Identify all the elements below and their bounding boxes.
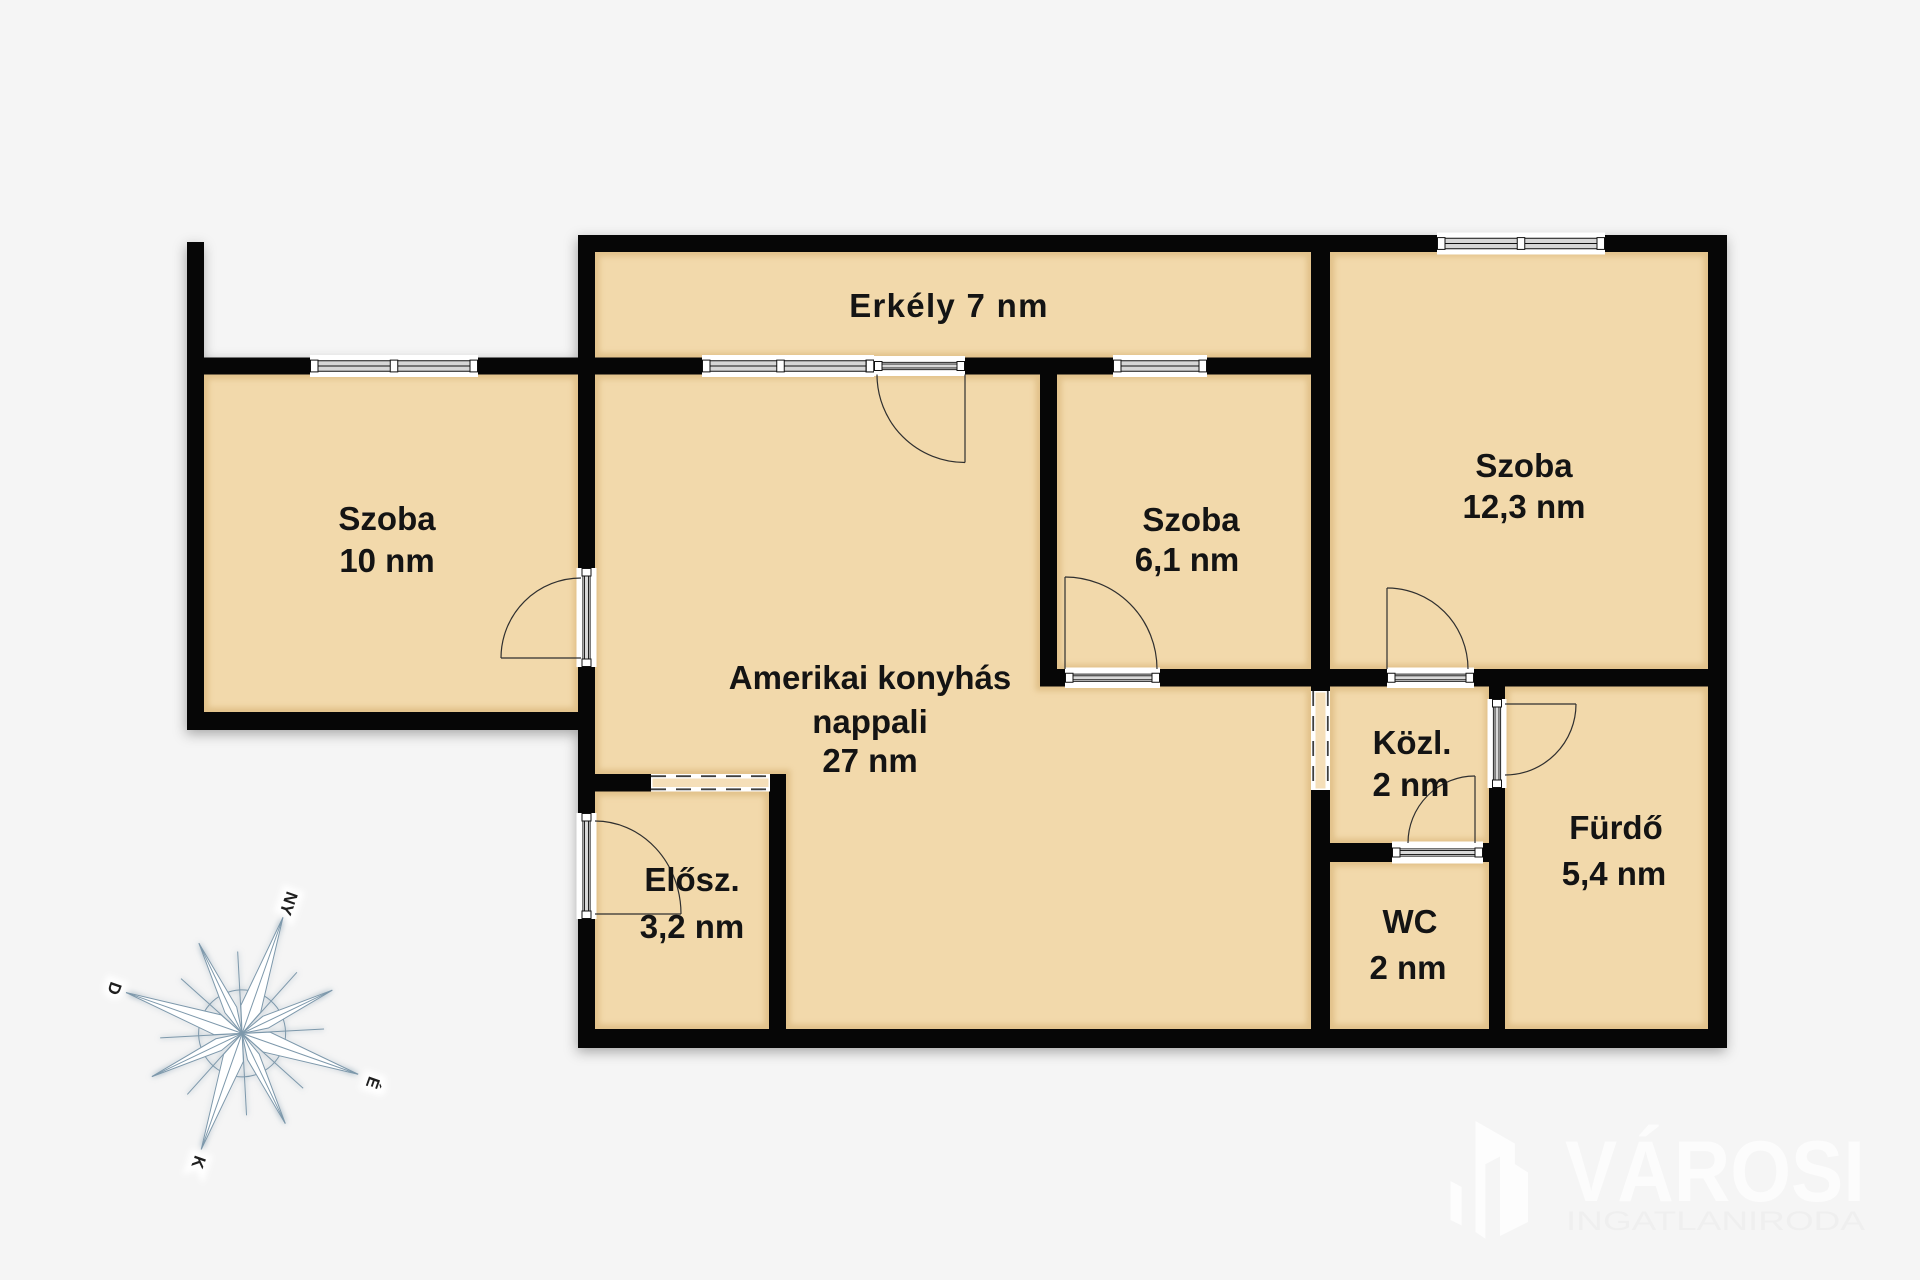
svg-text:Szoba: Szoba (338, 500, 436, 537)
svg-text:Szoba: Szoba (1142, 501, 1240, 538)
svg-text:Erkély 7 nm: Erkély 7 nm (849, 287, 1049, 324)
svg-text:Fürdő: Fürdő (1569, 809, 1662, 846)
svg-text:INGATLANIRODA: INGATLANIRODA (1566, 1206, 1865, 1236)
svg-text:5,4 nm: 5,4 nm (1562, 855, 1667, 892)
svg-text:Szoba: Szoba (1475, 447, 1573, 484)
svg-text:2 nm: 2 nm (1369, 949, 1446, 986)
svg-text:Amerikai konyhás: Amerikai konyhás (729, 659, 1011, 696)
svg-text:27 nm: 27 nm (822, 742, 917, 779)
svg-text:nappali: nappali (812, 703, 928, 740)
svg-text:Elősz.: Elősz. (644, 861, 739, 898)
svg-text:2 nm: 2 nm (1372, 766, 1449, 803)
svg-text:3,2 nm: 3,2 nm (640, 908, 745, 945)
svg-text:6,1 nm: 6,1 nm (1135, 541, 1240, 578)
svg-text:10 nm: 10 nm (339, 542, 434, 579)
svg-text:WC: WC (1383, 903, 1438, 940)
svg-text:12,3 nm: 12,3 nm (1463, 488, 1586, 525)
svg-text:Közl.: Közl. (1373, 724, 1452, 761)
